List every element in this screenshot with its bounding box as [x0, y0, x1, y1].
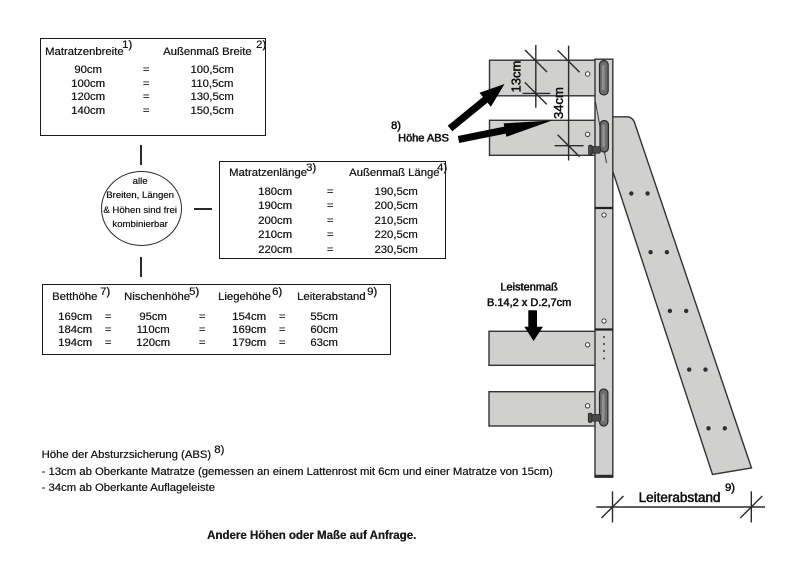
svg-text:13cm: 13cm: [509, 61, 524, 93]
svg-text:8): 8): [391, 120, 401, 132]
svg-text:Höhe ABS: Höhe ABS: [398, 133, 449, 145]
svg-text:9): 9): [725, 482, 735, 494]
svg-text:34cm: 34cm: [551, 87, 566, 119]
svg-text:Leistenmaß: Leistenmaß: [500, 282, 558, 294]
svg-text:B.14,2 x D.2,7cm: B.14,2 x D.2,7cm: [487, 297, 571, 309]
svg-text:Leiterabstand: Leiterabstand: [639, 490, 721, 505]
